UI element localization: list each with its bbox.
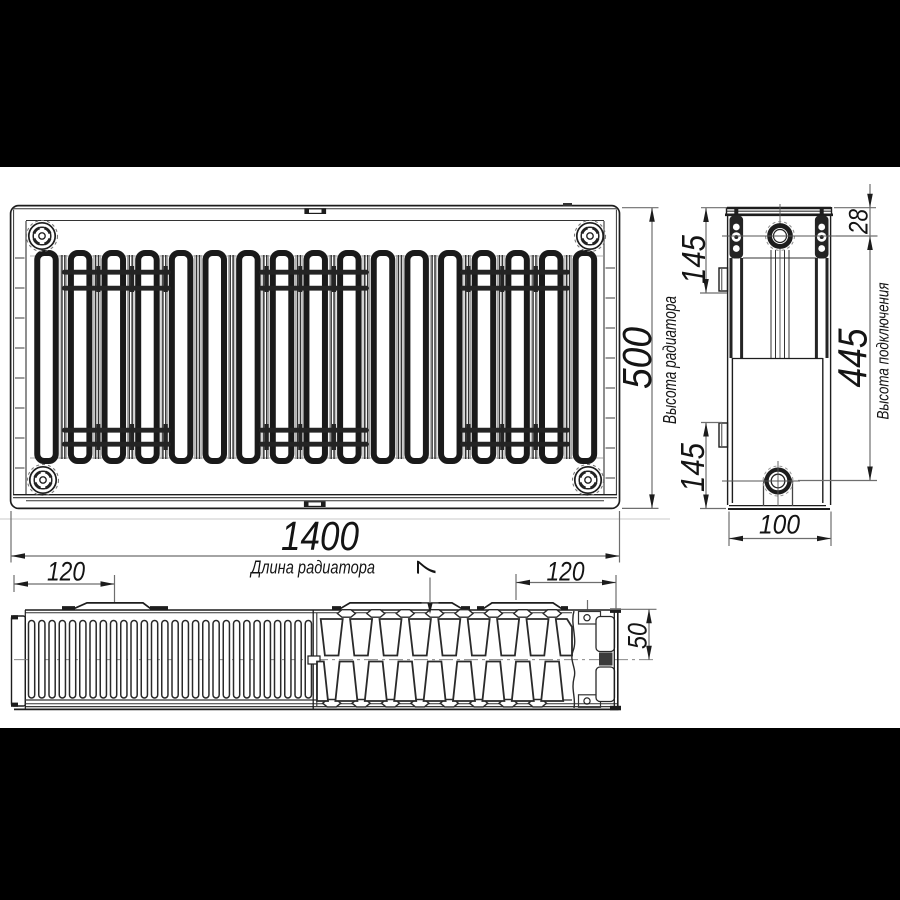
svg-text:28: 28 [844,209,874,235]
svg-text:100: 100 [759,510,800,540]
svg-text:50: 50 [623,623,653,649]
svg-text:Высота подключения: Высота подключения [874,283,893,420]
svg-text:445: 445 [830,328,876,387]
svg-text:500: 500 [614,327,660,389]
svg-text:145: 145 [675,234,712,284]
svg-text:120: 120 [47,557,85,587]
svg-text:7: 7 [412,561,442,577]
svg-text:145: 145 [674,442,711,492]
svg-text:120: 120 [547,557,585,587]
svg-text:Высота радиатора: Высота радиатора [659,296,680,424]
svg-text:1400: 1400 [281,513,359,559]
svg-text:Длина радиатора: Длина радиатора [249,557,375,578]
